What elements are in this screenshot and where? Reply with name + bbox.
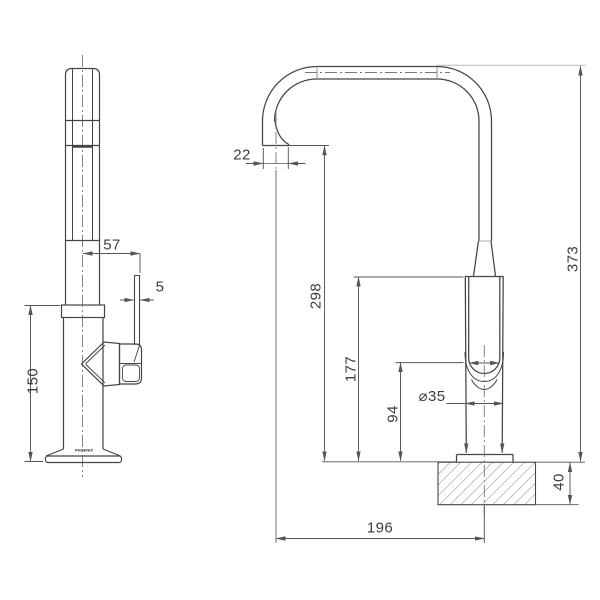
brand-logo-text: PHOENIX <box>75 448 93 453</box>
dim-label-spout-tip: 22 <box>233 147 251 164</box>
side-collar <box>62 305 105 318</box>
bench-section <box>438 462 536 505</box>
front-base-plate <box>457 455 514 463</box>
dim-label-bench-thickness: 40 <box>551 473 568 491</box>
spout-tip-flare <box>275 119 289 144</box>
side-handle-blade <box>135 276 140 346</box>
dim-label-body-height: 150 <box>25 368 42 394</box>
dim-label-handle-offset: 57 <box>103 237 121 254</box>
dim-label-overall-height: 373 <box>565 246 582 272</box>
side-body <box>64 318 104 450</box>
dim-label-body-diameter: ⌀35 <box>419 387 446 405</box>
side-handle-joint <box>82 342 120 386</box>
dim-label-handle-bottom-height: 94 <box>385 405 402 423</box>
spout-tip-bottom <box>263 144 289 146</box>
drawing-canvas <box>0 0 600 600</box>
side-view <box>46 55 142 477</box>
side-base-plate <box>46 456 122 463</box>
neck-taper <box>474 241 496 276</box>
dim-label-body-top-height: 177 <box>343 356 360 382</box>
side-handle-hub-inset <box>123 365 140 382</box>
body-inner-u <box>469 277 500 374</box>
dim-label-spout-reach: 196 <box>367 520 393 537</box>
front-view <box>263 67 536 521</box>
side-spout-inner-lines <box>73 69 93 240</box>
dim-label-outlet-height: 298 <box>308 283 325 309</box>
gooseneck-inner <box>275 79 480 241</box>
faucet-technical-drawing: 57 5 150 22 298 177 94 ⌀35 373 40 196 PH… <box>0 0 600 600</box>
dim-label-handle-thickness: 5 <box>156 279 165 296</box>
gooseneck-outer <box>263 67 492 242</box>
side-handle-hub-socket <box>134 346 140 363</box>
